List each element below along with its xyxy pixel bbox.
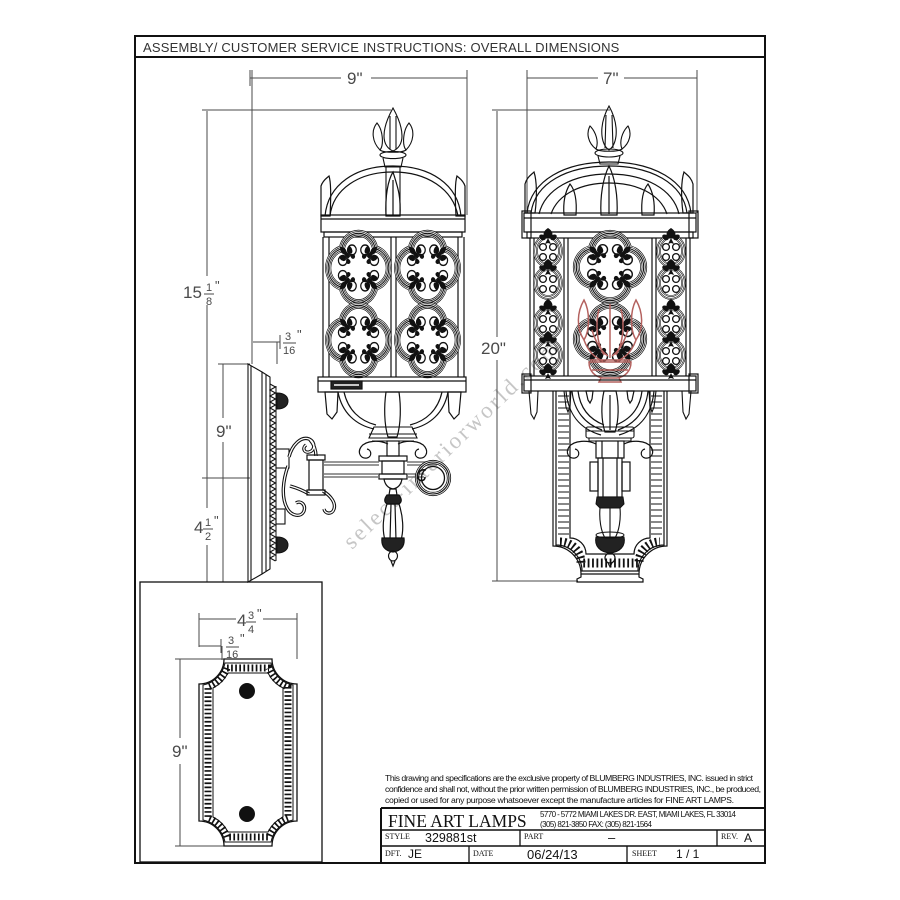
svg-text:3: 3 xyxy=(228,635,234,647)
svg-text:JE: JE xyxy=(408,847,422,861)
svg-text:ASSEMBLY/ CUSTOMER SERVICE IN: ASSEMBLY/ CUSTOMER SERVICE INSTRUCTIONS:… xyxy=(143,40,620,55)
svg-text:9": 9" xyxy=(172,742,188,761)
svg-text:": " xyxy=(215,278,220,293)
svg-text:confidence and shall not, with: confidence and shall not, without the pr… xyxy=(385,784,761,794)
svg-text:A: A xyxy=(744,831,752,845)
svg-text:1: 1 xyxy=(206,282,212,294)
svg-text:FINE ART LAMPS: FINE ART LAMPS xyxy=(388,811,527,831)
svg-text:4: 4 xyxy=(248,624,254,636)
svg-text:": " xyxy=(214,513,219,528)
svg-text:3: 3 xyxy=(248,610,254,622)
svg-text:": " xyxy=(297,327,302,342)
svg-text:4: 4 xyxy=(237,611,246,630)
svg-text:DFT.: DFT. xyxy=(385,849,402,858)
svg-text:5770 - 5772 MIAMI LAKES DR. EA: 5770 - 5772 MIAMI LAKES DR. EAST, MIAMI … xyxy=(540,810,737,819)
svg-text:SHEET: SHEET xyxy=(632,849,657,858)
svg-text:–: – xyxy=(608,830,616,845)
svg-text:8: 8 xyxy=(206,296,212,308)
svg-text:1 / 1: 1 / 1 xyxy=(676,847,700,861)
svg-text:20": 20" xyxy=(481,339,506,358)
svg-text:3: 3 xyxy=(285,331,291,343)
svg-text:STYLE: STYLE xyxy=(385,832,410,841)
svg-text:9": 9" xyxy=(347,69,363,88)
svg-text:329881st: 329881st xyxy=(425,831,477,845)
svg-text:06/24/13: 06/24/13 xyxy=(527,847,578,862)
svg-text:This drawing and specification: This drawing and specifications are the … xyxy=(385,773,754,783)
svg-text:2: 2 xyxy=(205,531,211,543)
svg-text:4: 4 xyxy=(194,518,203,537)
svg-text:16: 16 xyxy=(283,345,295,357)
svg-text:7": 7" xyxy=(603,69,619,88)
svg-text:REV.: REV. xyxy=(721,832,738,841)
svg-text:(305) 821-3850 FAX: (305) 82: (305) 821-3850 FAX: (305) 821-1564 xyxy=(540,820,653,829)
svg-text:9": 9" xyxy=(216,422,232,441)
svg-text:PART: PART xyxy=(524,832,543,841)
svg-text:DATE: DATE xyxy=(473,849,494,858)
svg-text:copied or used for any purpose: copied or used for any purpose whatsoeve… xyxy=(385,795,734,805)
svg-text:": " xyxy=(257,606,262,621)
svg-text:": " xyxy=(240,631,245,646)
svg-text:1: 1 xyxy=(205,517,211,529)
svg-text:15: 15 xyxy=(183,283,202,302)
